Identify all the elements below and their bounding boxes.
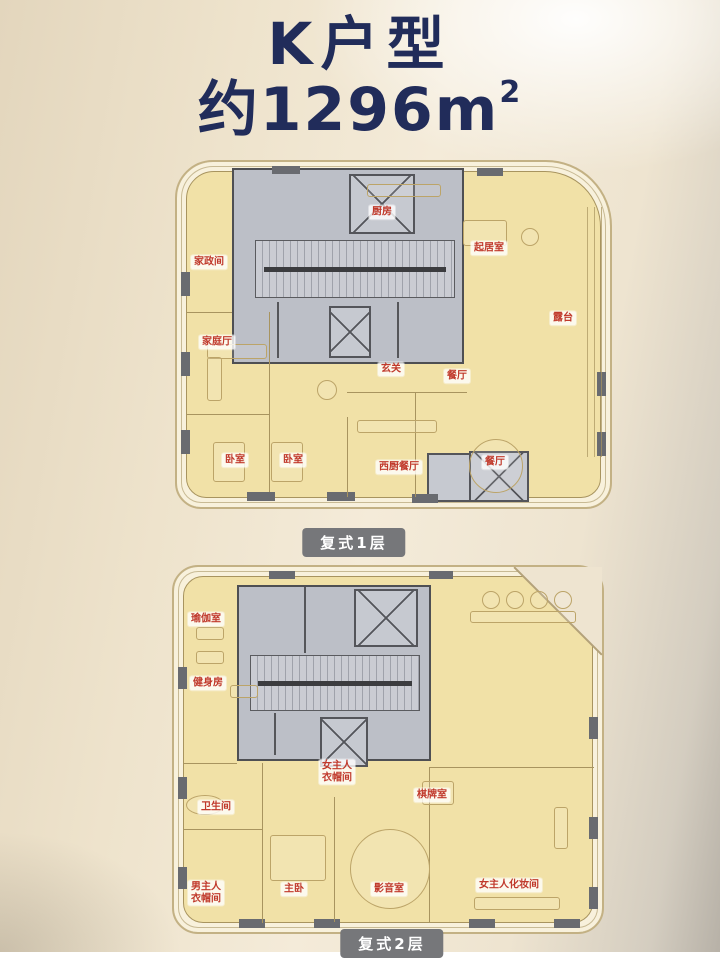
- bed: [270, 835, 326, 881]
- wall-segment: [469, 919, 495, 928]
- sink: [554, 591, 572, 609]
- gym-equipment: [230, 685, 258, 698]
- wall-segment: [477, 168, 503, 176]
- partition-line: [347, 392, 467, 393]
- wall-segment: [178, 777, 187, 799]
- partition-line: [187, 414, 269, 415]
- room-label: 露台: [550, 311, 576, 325]
- kitchen-counter: [470, 611, 576, 623]
- area-unit: m: [435, 75, 500, 145]
- area-prefix: 约: [198, 75, 260, 145]
- sofa: [207, 357, 222, 401]
- floor-plan-level1: 家政间厨房起居室露台家庭厅玄关餐厅卧室卧室西厨餐厅餐厅: [175, 160, 612, 509]
- room-label: 餐厅: [444, 369, 470, 383]
- wall-segment: [181, 430, 190, 454]
- wall-segment: [178, 667, 187, 689]
- vanity-counter: [474, 897, 560, 910]
- partition-line: [269, 312, 270, 492]
- gym-equipment: [196, 627, 224, 640]
- sink: [530, 591, 548, 609]
- wall-segment: [429, 571, 453, 579]
- room-label: 家政间: [191, 255, 227, 269]
- page-area: 约1296m2: [0, 77, 720, 142]
- wall-segment: [589, 717, 598, 739]
- wall-segment: [178, 867, 187, 889]
- room-label: 主卧: [281, 882, 307, 896]
- plan1-elevator-shaft-lobby: [329, 306, 371, 358]
- room-label: 女主人化妆间: [476, 878, 542, 892]
- plan1-elevator-shaft-top: [349, 174, 415, 234]
- partition-line: [429, 767, 594, 768]
- room-label: 餐厅: [482, 455, 508, 469]
- room-label: 起居室: [471, 241, 507, 255]
- room-label: 厨房: [369, 205, 395, 219]
- wall-segment: [272, 166, 300, 174]
- wall-segment: [314, 919, 340, 928]
- kitchen-counter: [367, 184, 441, 197]
- area-exponent: 2: [499, 75, 522, 110]
- wall-segment: [181, 352, 190, 376]
- room-label: 健身房: [190, 676, 226, 690]
- core-divider: [277, 302, 279, 358]
- room-label: 女主人衣帽间: [319, 760, 355, 785]
- floor-caption-level2: 复式2层: [340, 929, 443, 958]
- room-label: 卧室: [280, 453, 306, 467]
- wall-segment: [269, 571, 295, 579]
- gym-equipment: [196, 651, 224, 664]
- brochure-page: K户型 约1296m2: [0, 0, 720, 952]
- wall-segment: [554, 919, 580, 928]
- wall-segment: [327, 492, 355, 501]
- room-label: 棋牌室: [414, 788, 450, 802]
- room-label: 影音室: [371, 882, 407, 896]
- core-divider: [274, 713, 276, 755]
- core-divider: [397, 302, 399, 358]
- partition-line: [184, 763, 237, 764]
- partition-line: [334, 797, 335, 922]
- kitchen-counter: [357, 420, 437, 433]
- floor-plan-level2: 瑜伽室健身房女主人衣帽间卫生间棋牌室男主人衣帽间主卧影音室女主人化妆间: [172, 565, 604, 934]
- wall-segment: [247, 492, 275, 501]
- wall-segment: [181, 272, 190, 296]
- partition-line: [187, 312, 232, 313]
- area-value: 1296: [260, 75, 435, 145]
- floor-caption-level1: 复式1层: [302, 528, 405, 557]
- wall-segment: [589, 817, 598, 839]
- partition-line: [347, 417, 348, 497]
- plan2-elevator-shaft-top: [354, 589, 418, 647]
- title-block: K户型 约1296m2: [0, 12, 720, 142]
- room-label: 男主人衣帽间: [188, 881, 224, 906]
- page-title: K户型: [0, 12, 720, 77]
- room-label: 卧室: [222, 453, 248, 467]
- wall-segment: [589, 887, 598, 909]
- core-divider: [304, 587, 306, 653]
- terrace-decking: [581, 207, 603, 457]
- room-label: 玄关: [378, 362, 404, 376]
- sink: [506, 591, 524, 609]
- sink: [482, 591, 500, 609]
- plan1-stair-hall: [255, 240, 455, 298]
- media-room-wall: [350, 829, 430, 909]
- side-table: [521, 228, 539, 246]
- room-label: 卫生间: [198, 800, 234, 814]
- partition-line: [415, 392, 416, 497]
- coffee-table: [317, 380, 337, 400]
- room-label: 西厨餐厅: [376, 460, 422, 474]
- partition-line: [184, 829, 262, 830]
- room-label: 家庭厅: [199, 335, 235, 349]
- room-label: 瑜伽室: [188, 612, 224, 626]
- partition-line: [262, 763, 263, 923]
- plan2-stair-hall: [250, 655, 420, 711]
- sofa: [554, 807, 568, 849]
